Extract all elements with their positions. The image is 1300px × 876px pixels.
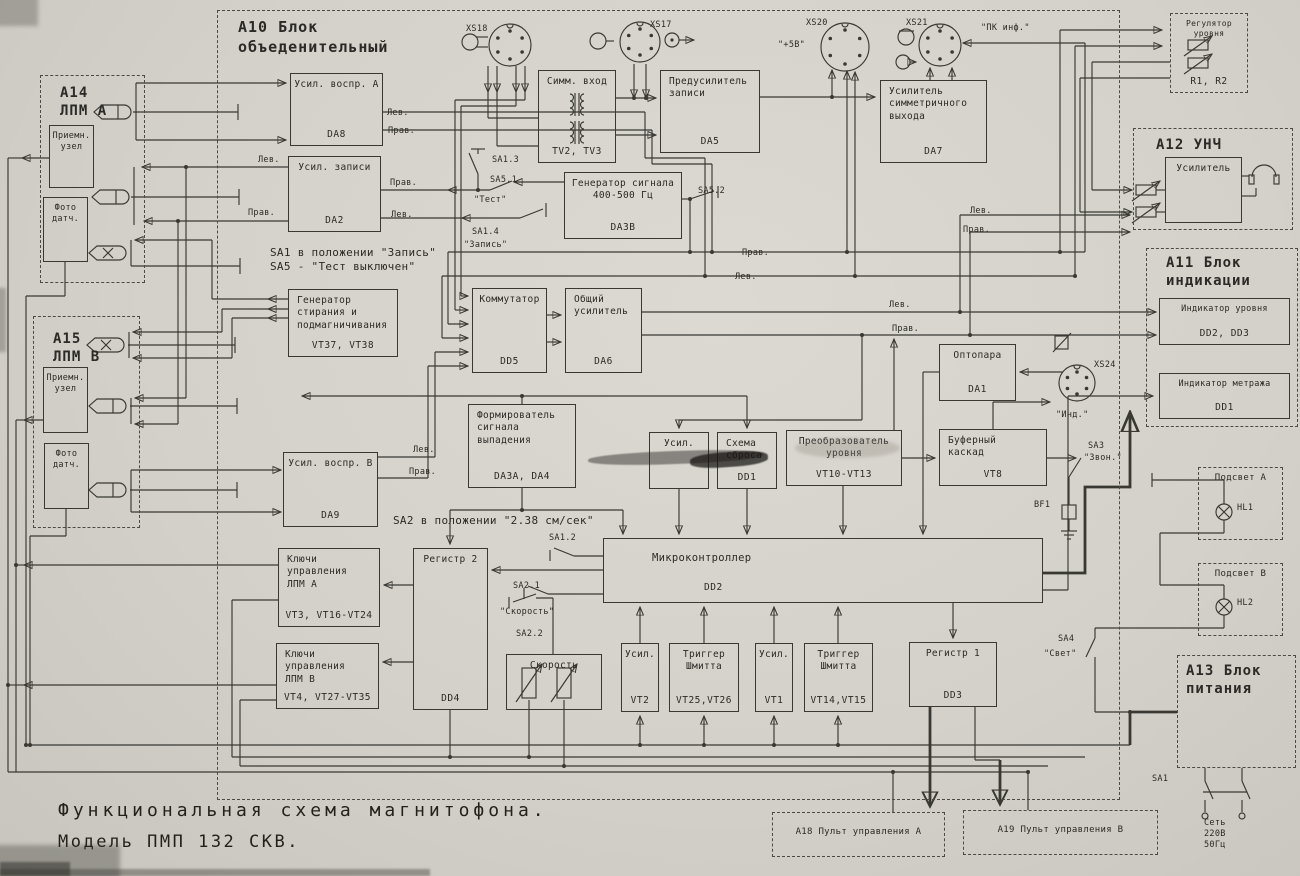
transformer-icons [570, 93, 584, 144]
din-connector-icons [489, 22, 1095, 401]
xs18-connector-icon [489, 24, 531, 66]
xs17-connector-icon [620, 22, 660, 62]
wiring-layer [0, 0, 1300, 876]
xs21-connector-icon [919, 24, 961, 66]
xs24-connector-icon [1059, 365, 1095, 401]
wires-top-connectors [455, 43, 1085, 310]
variable-resistor-icons [516, 36, 1212, 702]
wires-record-test [381, 112, 718, 276]
xs20-connector-icon [821, 23, 869, 71]
magnetic-head-icons [87, 83, 136, 512]
wires-a14-heads [8, 83, 288, 772]
wires-right [1086, 473, 1250, 819]
schematic-scan: Усил. воспр. АDA8Усил. записиDA2Симм. вх… [0, 0, 1300, 876]
wires-mc [302, 335, 1153, 662]
wires-bottom [8, 565, 1177, 812]
